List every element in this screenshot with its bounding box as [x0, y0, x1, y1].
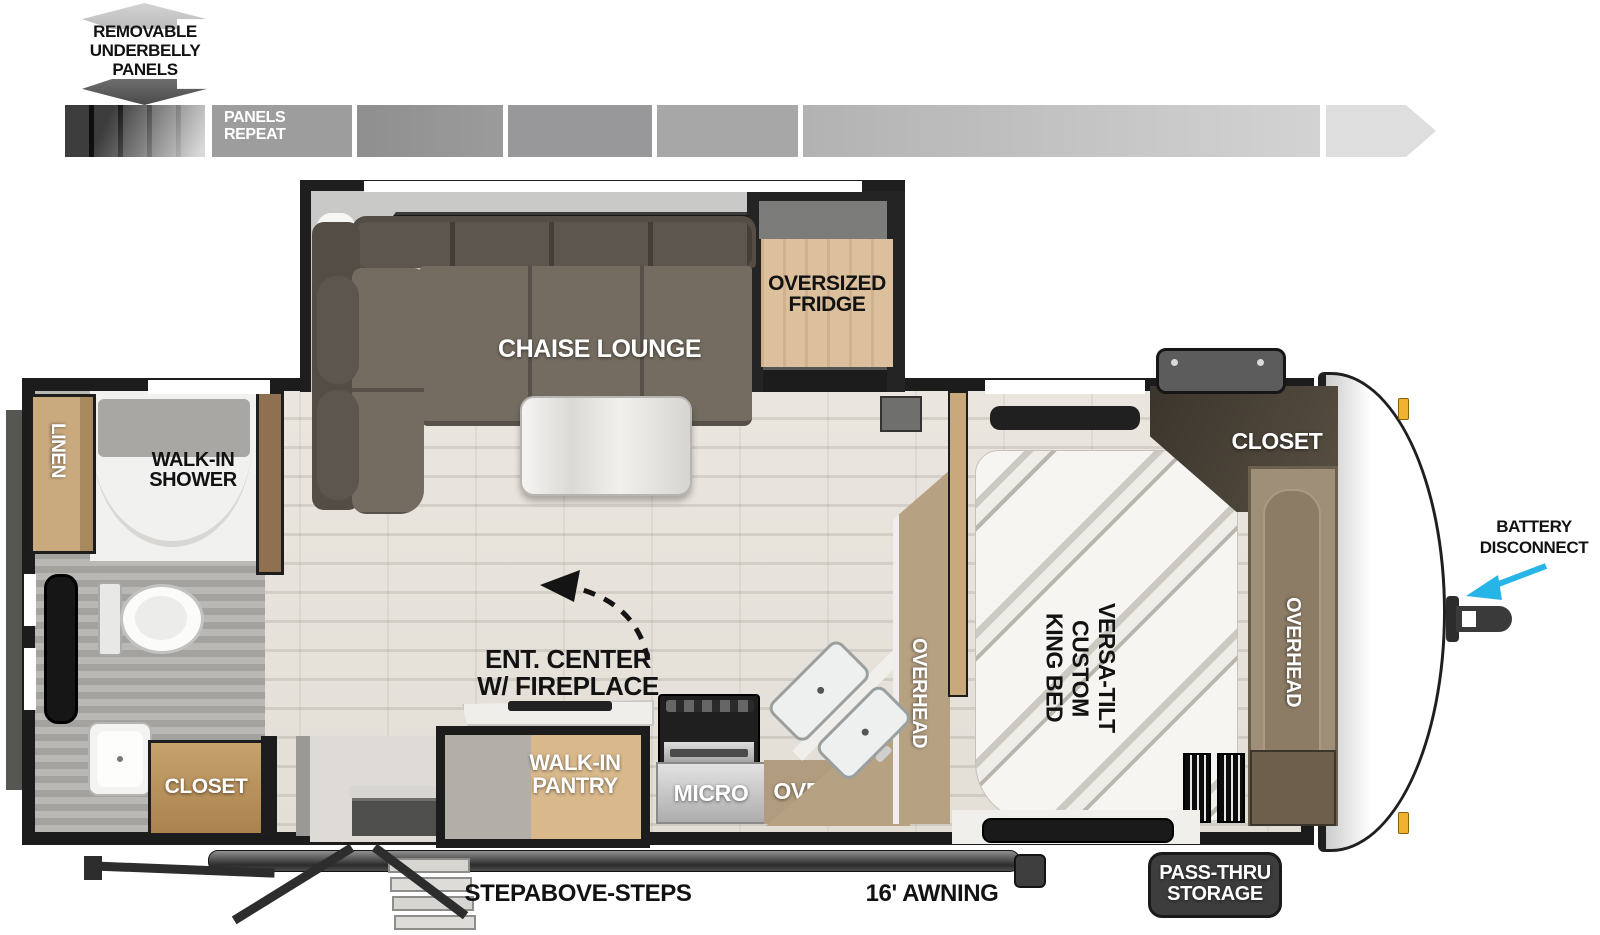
awning-roller	[208, 850, 1020, 872]
chaise-lounge-label: CHAISE LOUNGE	[498, 336, 701, 362]
ent-center-soundbar	[508, 701, 612, 711]
underbelly-panel-1	[65, 105, 205, 157]
hitch-latch	[1462, 611, 1476, 627]
pass-thru-storage-label: PASS-THRU STORAGE	[1151, 863, 1279, 905]
oversized-fridge: OVERSIZED FRIDGE	[761, 239, 893, 367]
linen-cabinet-side	[80, 397, 93, 551]
bedroom-closet-label: CLOSET	[1222, 430, 1332, 454]
bedroom-ac-unit	[880, 396, 922, 432]
stove-oven-handle	[670, 749, 748, 757]
fridge-lower-drawers	[763, 367, 887, 392]
fridge-top-shelf	[759, 201, 887, 239]
bedroom-tv-console	[990, 406, 1140, 430]
chaise-left-seats	[352, 268, 424, 514]
underbelly-line3: PANELS	[70, 60, 220, 79]
toilet-bowl	[120, 584, 204, 654]
linen-cabinet: LINEN	[30, 394, 96, 554]
bed-line3: KING BED	[1042, 613, 1065, 722]
entry-wall-left	[296, 736, 310, 836]
underbelly-panel-arrow	[1326, 105, 1436, 157]
rear-window	[44, 574, 78, 724]
bath-sink-drain	[117, 756, 123, 762]
bedroom-vent-grille-2	[1217, 753, 1245, 823]
underbelly-down-arrow-icon	[82, 79, 207, 105]
bath-wall-upper	[256, 391, 284, 575]
slideout-top-window	[364, 181, 862, 192]
shower-line2: SHOWER	[128, 470, 258, 490]
fridge-line1: OVERSIZED	[761, 273, 893, 294]
underbelly-line2: UNDERBELLY	[70, 41, 220, 60]
pass-thru-storage-badge: PASS-THRU STORAGE	[1148, 852, 1282, 918]
underbelly-panel-2: PANELS REPEAT	[212, 105, 352, 157]
passthru-line1: PASS-THRU	[1151, 863, 1279, 884]
rear-wall-window-slot-1	[24, 574, 36, 626]
bath-sink	[88, 722, 152, 796]
bedroom-front-base-cabinet	[1250, 750, 1336, 826]
fridge-line2: FRIDGE	[761, 294, 893, 315]
panels-repeat-line1: PANELS	[224, 110, 285, 127]
toilet-tank	[98, 582, 122, 656]
rear-wall-window-slot-2	[24, 648, 36, 710]
stove-oven-front	[664, 742, 754, 764]
underbelly-panel-3	[357, 105, 503, 157]
ent-center-label: ENT. CENTER W/ FIREPLACE	[462, 646, 674, 699]
bath-top-window	[148, 380, 270, 394]
battery-disconnect-label: BATTERY DISCONNECT	[1470, 516, 1598, 559]
stepabove-tread-4	[394, 915, 476, 930]
bed-line2: CUSTOM	[1068, 620, 1091, 717]
underbelly-panel-4	[508, 105, 652, 157]
chaise-lounge-headrests	[356, 222, 752, 268]
shower-line1: WALK-IN	[128, 450, 258, 470]
chaise-left-cushion-bottom	[317, 390, 359, 500]
underbelly-callout: REMOVABLE UNDERBELLY PANELS	[70, 22, 220, 79]
battery-disconnect-arrow-icon	[1466, 566, 1546, 600]
sink-drain-1	[816, 685, 826, 695]
roof-rack-screw-left	[1171, 359, 1178, 366]
bed-line1: VERSA-TILT	[1095, 603, 1118, 733]
front-overhead-label: OVERHEAD	[1282, 597, 1303, 707]
oversized-fridge-label: OVERSIZED FRIDGE	[761, 273, 893, 316]
stove-burners	[666, 700, 754, 712]
bedroom-top-window	[985, 380, 1145, 394]
walk-in-shower-label: WALK-IN SHOWER	[128, 450, 258, 491]
underbelly-panel-5	[657, 105, 798, 157]
bed-label: VERSA-TILT CUSTOM KING BED	[1018, 552, 1142, 784]
panels-repeat-label: PANELS REPEAT	[224, 110, 285, 143]
underbelly-panel-6	[803, 105, 1320, 157]
chaise-left-cushion-top	[317, 276, 359, 384]
roof-rack-box	[1156, 348, 1286, 394]
ent-center-line2: W/ FIREPLACE	[462, 673, 674, 700]
linen-label: LINEN	[47, 423, 67, 478]
awning-end-cap	[1014, 854, 1046, 888]
panels-repeat-line2: REPEAT	[224, 127, 285, 144]
roof-rack-screw-right	[1257, 359, 1264, 366]
pantry-line2: PANTRY	[505, 775, 645, 798]
awning-label: 16' AWNING	[852, 882, 1012, 906]
rear-jack-foot	[84, 856, 102, 880]
bath-closet-label: CLOSET	[151, 776, 261, 798]
stepabove-tread-1	[388, 858, 470, 873]
passthru-line2: STORAGE	[1151, 884, 1279, 905]
microwave: MICRO	[656, 762, 766, 824]
battery-line1: BATTERY	[1470, 516, 1598, 537]
front-marker-light-top	[1398, 398, 1409, 420]
battery-line2: DISCONNECT	[1470, 537, 1598, 558]
island-table	[520, 396, 692, 496]
pantry-line1: WALK-IN	[505, 752, 645, 775]
sink-drain-2	[860, 727, 870, 737]
bedroom-bottom-window	[982, 818, 1174, 843]
ent-center-line1: ENT. CENTER	[462, 646, 674, 673]
toilet-seat-inner	[135, 596, 187, 640]
stepabove-tread-2	[390, 877, 472, 892]
floorplan-canvas: REMOVABLE UNDERBELLY PANELS PANELS REPEA…	[0, 0, 1600, 935]
entry-curb	[350, 786, 440, 798]
walk-in-pantry-label: WALK-IN PANTRY	[505, 752, 645, 798]
stepabove-steps-label: STEPABOVE-STEPS	[462, 882, 694, 906]
underbelly-line1: REMOVABLE	[70, 22, 220, 41]
bedroom-wall	[948, 391, 968, 697]
bath-closet: CLOSET	[148, 740, 264, 836]
micro-label: MICRO	[658, 782, 764, 806]
stove	[658, 694, 760, 768]
entry-step-well	[352, 798, 438, 836]
bath-wall-lower	[261, 736, 277, 836]
front-marker-light-bottom	[1398, 812, 1409, 834]
